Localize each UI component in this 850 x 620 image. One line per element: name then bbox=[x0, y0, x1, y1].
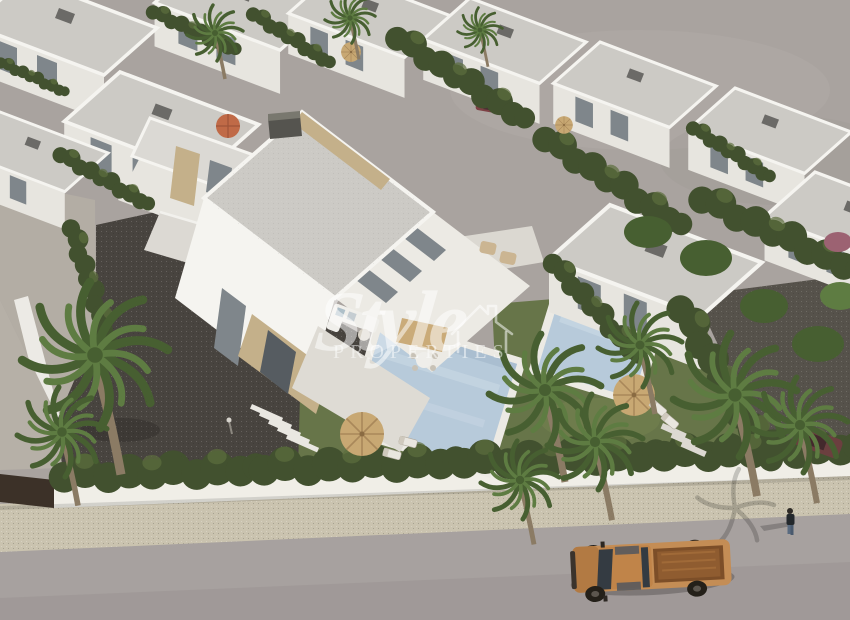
aerial-render-photo: Style PROPERTIES bbox=[0, 0, 850, 620]
thatch-umbrella bbox=[555, 116, 573, 134]
orange-umbrella bbox=[216, 114, 240, 138]
thatch-umbrella bbox=[340, 412, 384, 456]
aerial-render bbox=[0, 0, 850, 620]
